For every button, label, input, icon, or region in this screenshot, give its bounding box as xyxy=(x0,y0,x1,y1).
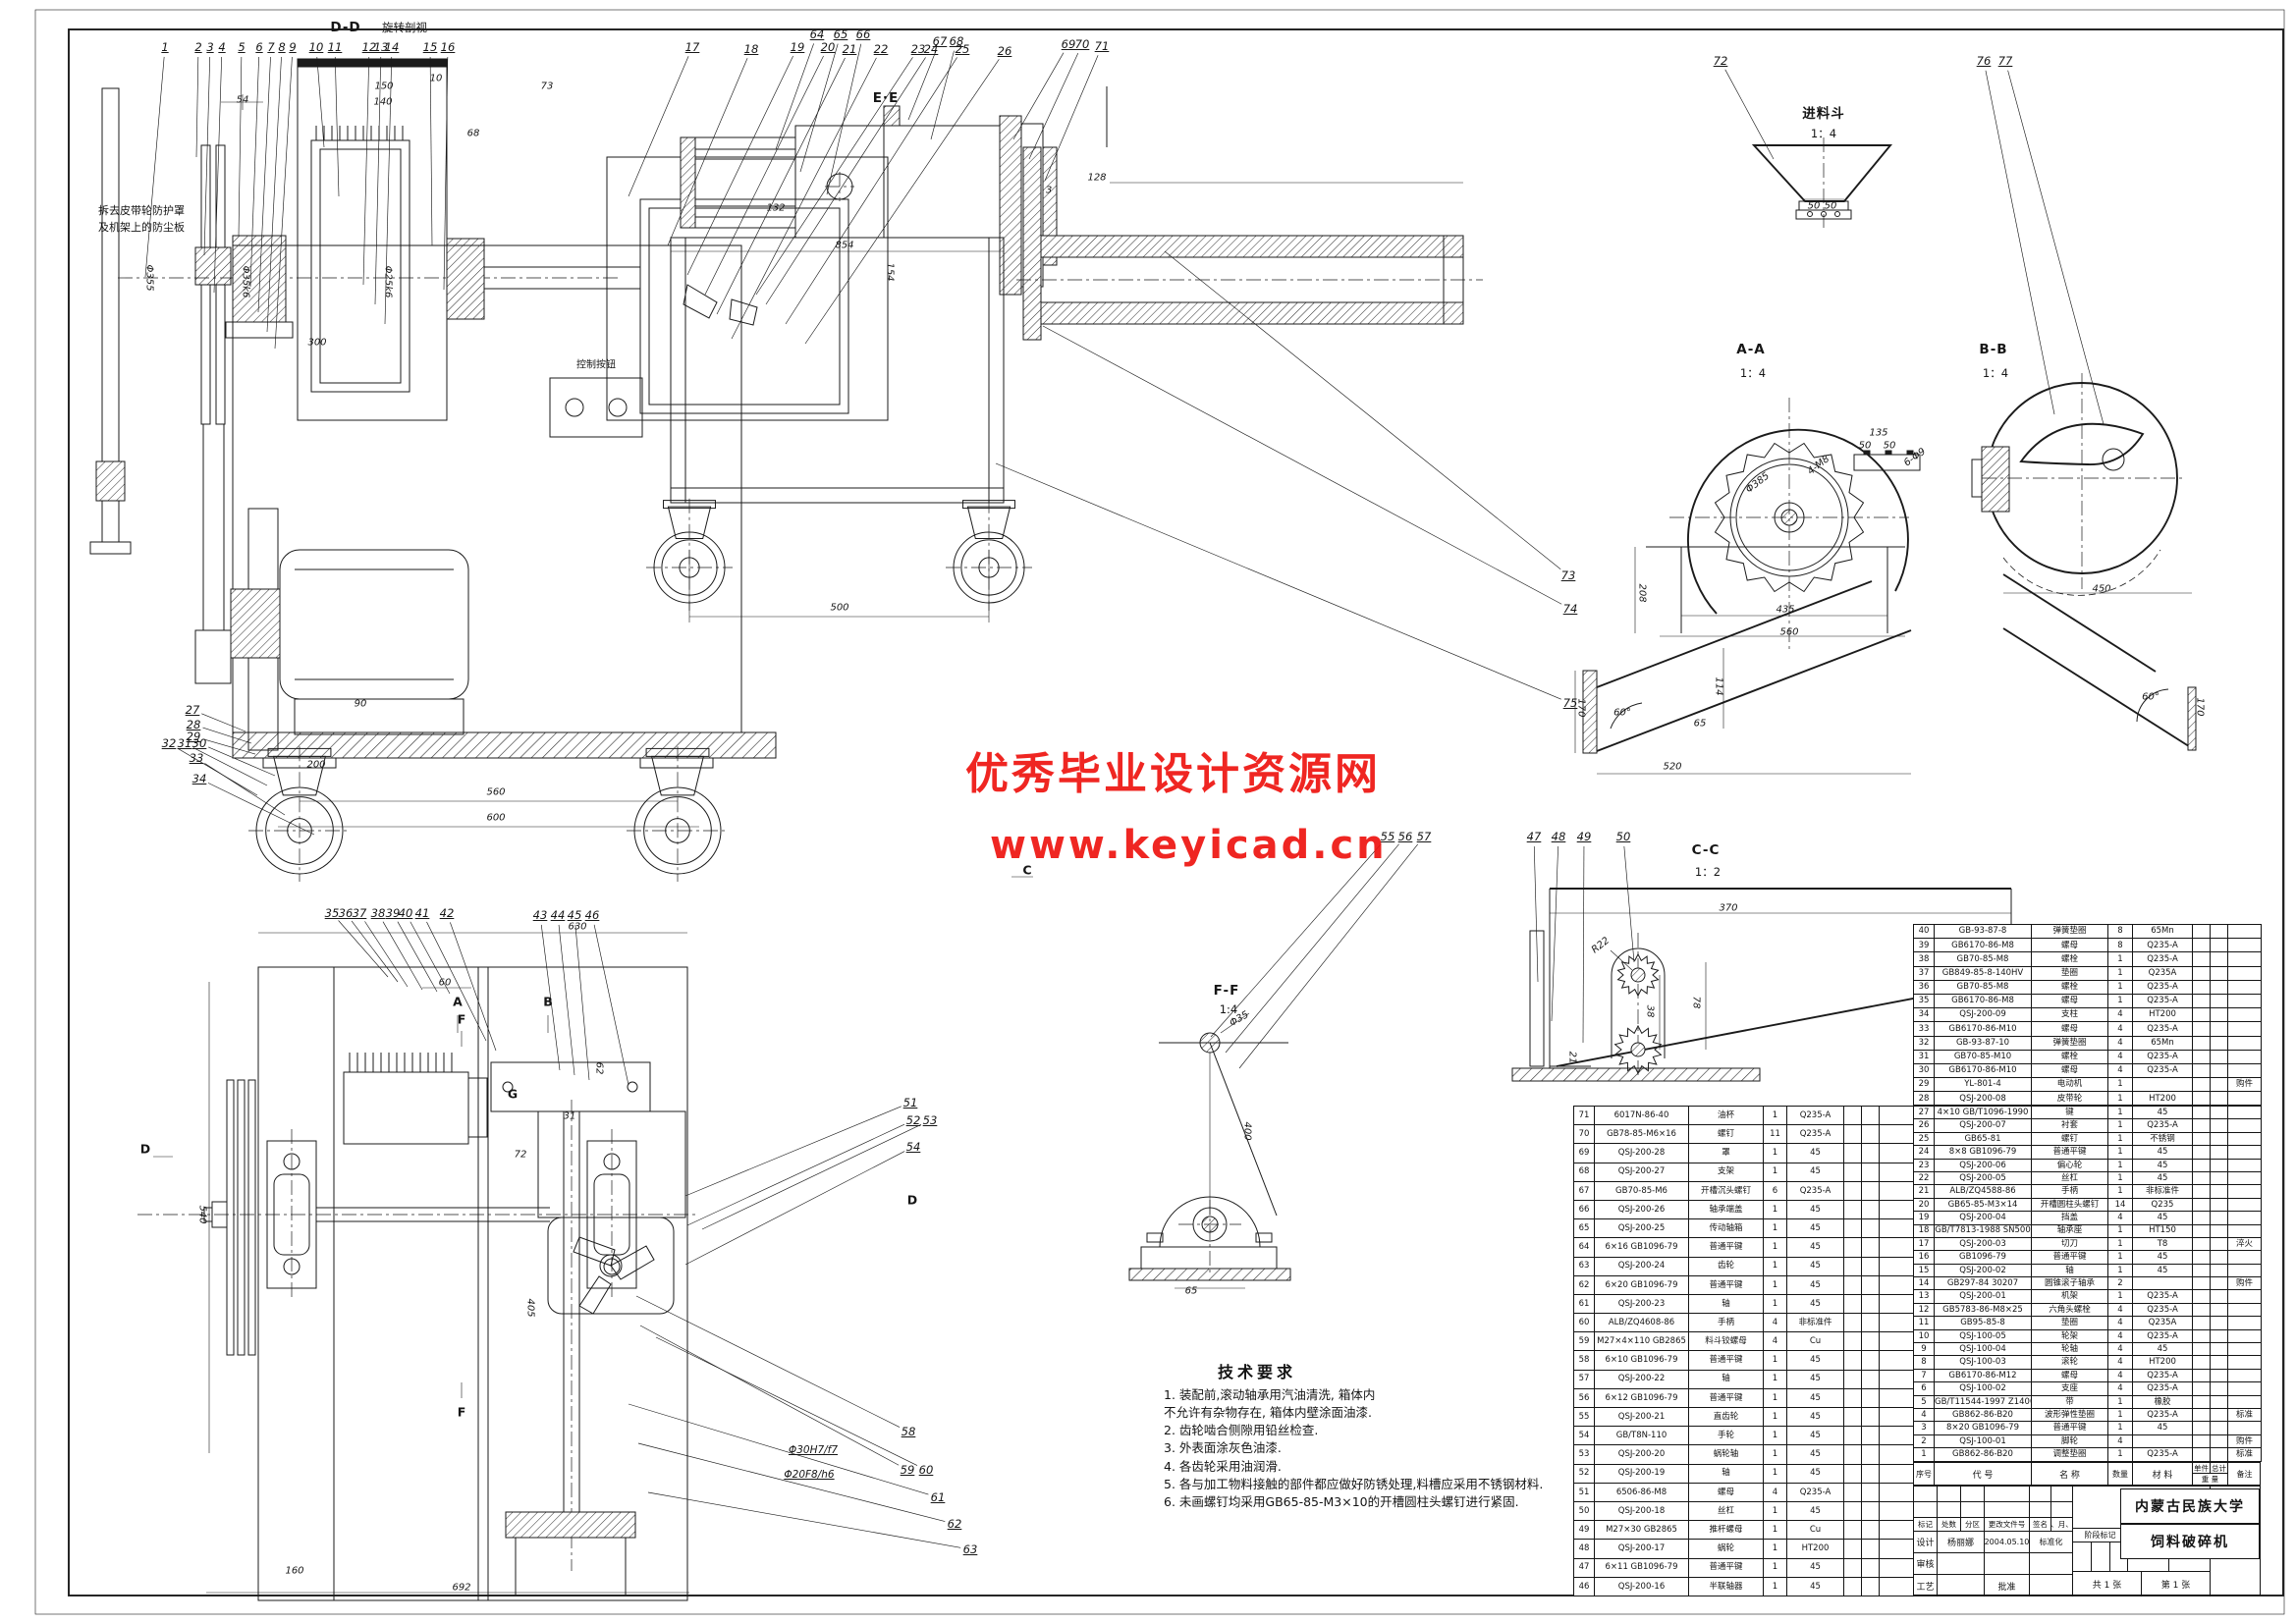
callout-52: 52 xyxy=(906,1113,921,1127)
bom-row: 53QSJ-200-20蜗轮轴145 xyxy=(1574,1445,1914,1464)
dim-label: 450 xyxy=(2092,584,2110,595)
bom-row: 10QSJ-100-05轮架4Q235-A xyxy=(1914,1329,2262,1342)
tb-designer: 杨丽娜 xyxy=(1938,1532,1985,1553)
dim-label: A xyxy=(453,995,463,1009)
dim-label: 170 xyxy=(2195,697,2206,716)
callout-51: 51 xyxy=(903,1096,918,1109)
dim-label: 60° xyxy=(2142,692,2159,703)
dim-label: 435 xyxy=(1776,605,1794,616)
bom-header-name: 名 称 xyxy=(2032,1463,2108,1486)
dim-label: 控制按钮 xyxy=(576,356,616,371)
callout-67: 67 xyxy=(933,34,948,48)
bom-row: 69QSJ-200-28罩145 xyxy=(1574,1144,1914,1163)
bom-row: 6QSJ-100-02支座4Q235-A xyxy=(1914,1382,2262,1395)
tb-sheet-no: 第 1 张 xyxy=(2142,1572,2211,1596)
bom-row: 26QSJ-200-07衬套1Q235-A xyxy=(1914,1119,2262,1132)
callout-30: 30 xyxy=(192,736,207,750)
bom-row: 8QSJ-100-03滚轮4HT200 xyxy=(1914,1356,2262,1369)
callout-69: 69 xyxy=(1062,37,1076,51)
technical-requirements-items: 1. 装配前,滚动轴承用汽油清洗, 箱体内 不允许有杂物存在, 箱体内壁涂面油漆… xyxy=(1164,1386,1635,1511)
dim-label: F xyxy=(458,1405,466,1420)
dim-label: 400 xyxy=(1242,1121,1253,1140)
tb-docno: 更改文件号 xyxy=(1985,1518,2030,1532)
dim-label: 854 xyxy=(835,241,853,251)
dim-label: 150 xyxy=(374,81,393,92)
dim-label: 370 xyxy=(1719,903,1737,914)
callout-45: 45 xyxy=(568,908,582,922)
callout-4: 4 xyxy=(218,40,225,54)
bom-row: 22QSJ-200-05丝杠145 xyxy=(1914,1171,2262,1184)
bom-row: 40GB-93-87-8弹簧垫圈865Mn xyxy=(1914,925,2262,939)
view-front-section-dd xyxy=(90,59,888,827)
title-block: 标记 处数 分区 更改文件号 签名 年、月、日 设计 杨丽娜 2004.05.1… xyxy=(1913,1486,2261,1596)
dim-label: Φ355 xyxy=(144,265,155,292)
bom-row: 15QSJ-200-02轴145 xyxy=(1914,1264,2262,1276)
dim-label: 72 xyxy=(515,1150,527,1161)
dim-label: 拆去皮带轮防护罩 xyxy=(98,202,185,218)
bom-row: 20GB65-85-M3×14开槽圆柱头螺钉14Q235 xyxy=(1914,1198,2262,1211)
bom-row: 29YL-801-4电动机1购件 xyxy=(1914,1078,2262,1092)
bom-row: 31GB70-85-M10螺栓4Q235-A xyxy=(1914,1050,2262,1063)
bom-row: 4GB862-86-B20波形弹性垫圈1Q235-A标准 xyxy=(1914,1408,2262,1421)
callout-63: 63 xyxy=(963,1542,978,1556)
callout-57: 57 xyxy=(1417,830,1432,843)
bom-row: 65QSJ-200-25传动轴箱145 xyxy=(1574,1219,1914,1238)
tb-check-label: 审核 xyxy=(1914,1553,1938,1575)
bom-row: 60ALB/ZQ4608-86手柄4非标准件 xyxy=(1574,1314,1914,1332)
dim-label: Φ25k6 xyxy=(383,266,394,298)
view-label: 1：2 xyxy=(1695,864,1721,880)
bom-table-right-lower: 274×10 GB/T1096-1990键14526QSJ-200-07衬套1Q… xyxy=(1913,1106,2262,1462)
list-item: 4. 各齿轮采用油润滑. xyxy=(1164,1458,1635,1476)
callout-74: 74 xyxy=(1563,602,1578,616)
callout-26: 26 xyxy=(998,44,1012,58)
view-roller-detail xyxy=(1016,86,1483,340)
dim-label: F xyxy=(458,1012,466,1027)
bom-header-no: 序号 xyxy=(1914,1463,1935,1486)
callout-38: 38 xyxy=(371,906,386,920)
callout-35: 35 xyxy=(325,906,340,920)
callout-61: 61 xyxy=(931,1490,946,1504)
bom-row: 586×10 GB1096-79普通平键145 xyxy=(1574,1351,1914,1370)
callout-44: 44 xyxy=(551,908,566,922)
callout-8: 8 xyxy=(278,40,285,54)
callout-19: 19 xyxy=(791,40,805,54)
bom-row: 16GB1096-79普通平键145 xyxy=(1914,1251,2262,1264)
callout-65: 65 xyxy=(834,27,848,41)
bom-row: 32GB-93-87-10弹簧垫圈465Mn xyxy=(1914,1036,2262,1050)
view-section-ff xyxy=(1129,1013,1290,1288)
callout-58: 58 xyxy=(902,1425,916,1438)
callout-21: 21 xyxy=(843,42,857,56)
dim-label: 170 xyxy=(1576,698,1587,717)
bom-row: 38×20 GB1096-79普通平键145 xyxy=(1914,1422,2262,1434)
callout-60: 60 xyxy=(919,1463,934,1477)
callout-48: 48 xyxy=(1552,830,1566,843)
view-label: F-F xyxy=(1214,983,1240,999)
tb-standard-label: 标准化 xyxy=(2030,1532,2073,1553)
dim-label: 60° xyxy=(1613,708,1631,719)
view-label: 1：4 xyxy=(1983,365,2008,381)
dim-label: Φ35k6 xyxy=(241,266,251,298)
callout-43: 43 xyxy=(533,908,548,922)
bom-row: 1GB862-86-B20调整垫圈1Q235-A标准 xyxy=(1914,1448,2262,1461)
list-item: 1. 装配前,滚动轴承用汽油清洗, 箱体内 不允许有杂物存在, 箱体内壁涂面油漆… xyxy=(1164,1386,1635,1422)
dim-label: 90 xyxy=(355,699,367,710)
bom-row: 21ALB/ZQ4588-86手柄1非标准件 xyxy=(1914,1185,2262,1198)
dim-label: 132 xyxy=(766,203,785,214)
callout-37: 37 xyxy=(353,906,367,920)
callout-36: 36 xyxy=(339,906,354,920)
bom-row: 33GB6170-86-M10螺母4Q235-A xyxy=(1914,1022,2262,1036)
bom-row: 25GB65-81螺钉1不锈钢 xyxy=(1914,1132,2262,1145)
callout-64: 64 xyxy=(810,27,825,41)
dim-label: 60 xyxy=(439,978,452,989)
bom-table-left: 716017N-86-40油杯1Q235-A70GB78-85-M6×16螺钉1… xyxy=(1573,1106,1914,1596)
dim-label: 560 xyxy=(486,787,505,798)
bom-row: 274×10 GB/T1096-1990键145 xyxy=(1914,1107,2262,1119)
tb-count: 处数 xyxy=(1938,1518,1961,1532)
dim-label: 128 xyxy=(1087,173,1106,184)
bom-row: 17QSJ-200-03切刀1T8淬火 xyxy=(1914,1237,2262,1250)
dim-label: 50 xyxy=(1808,201,1821,212)
dim-label: 50 xyxy=(1859,441,1872,452)
callout-53: 53 xyxy=(923,1113,938,1127)
bom-row: 52QSJ-200-19轴145 xyxy=(1574,1464,1914,1483)
dim-label: 21 xyxy=(1567,1052,1578,1064)
callout-68: 68 xyxy=(950,34,964,48)
bom-row: 7GB6170-86-M12螺母4Q235-A xyxy=(1914,1369,2262,1381)
view-label: C-C xyxy=(1692,842,1721,858)
bom-row: 12GB5783-86-M8×25六角头螺栓4Q235-A xyxy=(1914,1303,2262,1316)
dim-label: 54 xyxy=(237,95,249,106)
dim-label: D xyxy=(907,1193,917,1208)
view-label: E·E xyxy=(873,90,900,106)
dim-label: 300 xyxy=(307,338,326,349)
bom-row: 626×20 GB1096-79普通平键145 xyxy=(1574,1275,1914,1294)
bom-row: 18GB/T7813-1988 SN500轴承座1HT150 xyxy=(1914,1224,2262,1237)
dim-label: Φ20F8/h6 xyxy=(784,1469,834,1481)
tb-mark: 标记 xyxy=(1914,1518,1938,1532)
callout-32: 32 xyxy=(162,736,177,750)
bom-row: 30GB6170-86-M10螺母4Q235-A xyxy=(1914,1063,2262,1077)
tb-date-label: 年、月、日 xyxy=(2051,1518,2073,1532)
callout-66: 66 xyxy=(856,27,871,41)
dim-label: 62 xyxy=(594,1062,605,1075)
dim-label: 50 xyxy=(1884,441,1896,452)
bom-row: 38GB70-85-M8螺栓1Q235-A xyxy=(1914,952,2262,966)
dim-label: 200 xyxy=(306,760,325,771)
dim-label: 65 xyxy=(1694,719,1707,730)
callout-34: 34 xyxy=(192,772,207,785)
dim-label: 405 xyxy=(525,1298,536,1317)
dim-label: D xyxy=(140,1142,150,1157)
bom-row: 37GB849-85-8-140HV垫圈1Q235A xyxy=(1914,966,2262,980)
bom-row: 248×8 GB1096-79普通平键145 xyxy=(1914,1146,2262,1159)
bom-row: 646×16 GB1096-79普通平键145 xyxy=(1574,1238,1914,1257)
callout-1: 1 xyxy=(161,40,168,54)
callout-22: 22 xyxy=(874,42,889,56)
callout-76: 76 xyxy=(1977,54,1992,68)
view-label: 1：4 xyxy=(1811,126,1836,141)
list-item: 5. 各与加工物料接触的部件都应做好防锈处理,料槽应采用不锈钢材料. xyxy=(1164,1476,1635,1493)
bom-row: 19QSJ-200-04挡盖445 xyxy=(1914,1212,2262,1224)
view-hopper xyxy=(1754,137,1890,228)
dim-label: 135 xyxy=(1869,428,1887,439)
callout-31: 31 xyxy=(178,736,192,750)
dim-label: 78 xyxy=(1691,997,1702,1009)
callout-27: 27 xyxy=(186,703,200,717)
dim-label: 500 xyxy=(830,603,848,614)
bom-row: 28QSJ-200-08皮带轮1HT200 xyxy=(1914,1092,2262,1106)
bom-row: 23QSJ-200-06偏心轮145 xyxy=(1914,1159,2262,1171)
bom-row: 67GB70-85-M6开槽沉头螺钉6Q235-A xyxy=(1574,1181,1914,1200)
bom-row: 566×12 GB1096-79普通平键145 xyxy=(1574,1388,1914,1407)
callout-72: 72 xyxy=(1714,54,1728,68)
cad-sheet: 优秀毕业设计资源网 www.keyicad.cn 技术要求 1. 装配前,滚动轴… xyxy=(0,0,2296,1623)
callout-56: 56 xyxy=(1398,830,1413,843)
dim-label: Φ30H7/f7 xyxy=(789,1444,838,1456)
tb-sheet-total: 共 1 张 xyxy=(2073,1572,2142,1596)
bom-row: 63QSJ-200-24齿轮145 xyxy=(1574,1257,1914,1275)
dim-label: 65 xyxy=(1185,1286,1198,1297)
bom-row: 55QSJ-200-21直齿轮145 xyxy=(1574,1408,1914,1427)
dim-label: 560 xyxy=(1779,627,1798,638)
bom-row: 13QSJ-200-01机架1Q235-A xyxy=(1914,1290,2262,1303)
bom-row: 54GB/T8N-110手轮145 xyxy=(1574,1427,1914,1445)
callout-73: 73 xyxy=(1561,568,1576,582)
dim-label: 3 xyxy=(1046,186,1052,196)
bom-row: 70GB78-85-M6×16螺钉11Q235-A xyxy=(1574,1125,1914,1144)
tb-process-label: 工艺 xyxy=(1914,1575,1938,1596)
view-label: B-B xyxy=(1979,342,2007,357)
bom-row: 35GB6170-86-M8螺母1Q235-A xyxy=(1914,994,2262,1007)
dim-label: B xyxy=(543,995,553,1009)
callout-14: 14 xyxy=(385,40,400,54)
callout-17: 17 xyxy=(685,40,700,54)
bom-row: 68QSJ-200-27支架145 xyxy=(1574,1163,1914,1181)
bom-row: 39GB6170-86-M8螺母8Q235-A xyxy=(1914,939,2262,952)
callout-10: 10 xyxy=(309,40,324,54)
technical-requirements: 技术要求 1. 装配前,滚动轴承用汽油清洗, 箱体内 不允许有杂物存在, 箱体内… xyxy=(1164,1359,1635,1511)
callout-42: 42 xyxy=(440,906,455,920)
callout-9: 9 xyxy=(289,40,296,54)
callout-33: 33 xyxy=(190,751,204,765)
view-plan xyxy=(137,877,1033,1600)
dim-label: 31 xyxy=(564,1111,576,1122)
dim-label: 114 xyxy=(1714,676,1724,695)
callout-18: 18 xyxy=(744,42,759,56)
dim-label: 38 xyxy=(1645,1005,1656,1018)
bom-row: 36GB70-85-M8螺栓1Q235-A xyxy=(1914,980,2262,994)
bom-header: 序号 代 号 名 称 数量 材 料 单件 总计 重 量 备注 xyxy=(1913,1462,2261,1487)
callout-49: 49 xyxy=(1577,830,1592,843)
list-item: 2. 齿轮啮合侧隙用铅丝检查. xyxy=(1164,1422,1635,1439)
tb-school: 内蒙古民族大学 xyxy=(2120,1488,2260,1524)
dim-label: 692 xyxy=(452,1583,470,1594)
callout-47: 47 xyxy=(1527,830,1542,843)
watermark-line1: 优秀毕业设计资源网 xyxy=(965,738,1381,801)
dim-label: 208 xyxy=(1637,583,1648,602)
callout-59: 59 xyxy=(901,1463,915,1477)
bom-row: 716017N-86-40油杯1Q235-A xyxy=(1574,1107,1914,1125)
list-item: 6. 未画螺钉均采用GB65-85-M3×10的开槽圆柱头螺钉进行紧固. xyxy=(1164,1493,1635,1511)
tb-date: 2004.05.10 xyxy=(1985,1532,2030,1553)
view-side-section-ee xyxy=(671,106,1057,622)
bom-row: 5GB/T11544-1997 Z1400带1橡胶 xyxy=(1914,1395,2262,1408)
callout-62: 62 xyxy=(948,1517,962,1531)
callout-46: 46 xyxy=(585,908,600,922)
dim-label: G xyxy=(508,1087,518,1102)
dim-label: 10 xyxy=(430,74,443,84)
dim-label: 520 xyxy=(1663,762,1681,773)
bom-row: 49M27×30 GB2865推杆螺母1Cu xyxy=(1574,1521,1914,1540)
dim-label: 160 xyxy=(285,1566,303,1577)
bom-header-w1: 单件 xyxy=(2193,1463,2211,1474)
bom-table-right-upper: 40GB-93-87-8弹簧垫圈865Mn39GB6170-86-M8螺母8Q2… xyxy=(1913,924,2262,1106)
dim-label: 540 xyxy=(197,1205,208,1223)
bom-header-qty: 数量 xyxy=(2108,1463,2133,1486)
view-label: 旋转剖视 xyxy=(382,20,427,35)
callout-15: 15 xyxy=(423,40,438,54)
callout-41: 41 xyxy=(415,906,430,920)
bom-row: 476×11 GB1096-79普通平键145 xyxy=(1574,1558,1914,1577)
bom-row: 50QSJ-200-18丝杠145 xyxy=(1574,1501,1914,1520)
view-section-bb xyxy=(1972,373,2196,750)
tb-sign: 签名 xyxy=(2030,1518,2051,1532)
callout-40: 40 xyxy=(399,906,413,920)
bom-header-w2: 总计 xyxy=(2211,1463,2228,1474)
bom-row: 61QSJ-200-23轴145 xyxy=(1574,1294,1914,1313)
callout-54: 54 xyxy=(906,1140,921,1154)
dim-label: 630 xyxy=(568,922,586,933)
bom-row: 66QSJ-200-26轴承端盖145 xyxy=(1574,1200,1914,1218)
bom-header-note: 备注 xyxy=(2228,1463,2261,1486)
dim-label: 50 xyxy=(1825,201,1837,212)
dim-label: 600 xyxy=(486,813,505,824)
bom-row: 516506-86-M8螺母4Q235-A xyxy=(1574,1483,1914,1501)
bom-row: 46QSJ-200-16半联轴器145 xyxy=(1574,1577,1914,1596)
bom-header-mat: 材 料 xyxy=(2133,1463,2193,1486)
view-label: D-D xyxy=(330,20,360,35)
bom-row: 11GB95-85-8垫圈4Q235A xyxy=(1914,1317,2262,1329)
callout-3: 3 xyxy=(206,40,213,54)
view-label: 进料斗 xyxy=(1802,102,1845,122)
bom-header-weight: 重 量 xyxy=(2193,1474,2228,1486)
bom-row: 48QSJ-200-17蜗轮1HT200 xyxy=(1574,1540,1914,1558)
bom-row: 57QSJ-200-22轴145 xyxy=(1574,1370,1914,1388)
callout-71: 71 xyxy=(1095,39,1110,53)
bom-row: 34QSJ-200-09支柱4HT200 xyxy=(1914,1008,2262,1022)
tb-drawing-title: 饲料破碎机 xyxy=(2120,1524,2260,1559)
callout-20: 20 xyxy=(821,40,836,54)
view-label: 1：4 xyxy=(1740,365,1766,381)
bom-header-code: 代 号 xyxy=(1935,1463,2032,1486)
dim-label: 154 xyxy=(885,262,896,281)
list-item: 3. 外表面涂灰色油漆. xyxy=(1164,1439,1635,1457)
dim-label: 140 xyxy=(373,97,392,108)
callout-50: 50 xyxy=(1616,830,1631,843)
callout-5: 5 xyxy=(238,40,245,54)
bom-row: 14GB297-84 30207圆锥滚子轴承2购件 xyxy=(1914,1277,2262,1290)
tb-approve-label: 批准 xyxy=(1985,1575,2030,1596)
bom-row: 9QSJ-100-04轮轴445 xyxy=(1914,1343,2262,1356)
callout-16: 16 xyxy=(441,40,456,54)
dim-label: 及机架上的防尘板 xyxy=(98,219,185,235)
callout-7: 7 xyxy=(267,40,274,54)
callout-6: 6 xyxy=(255,40,262,54)
bom-row: 59M27×4×110 GB2865料斗铰螺母4Cu xyxy=(1574,1332,1914,1351)
callout-77: 77 xyxy=(1998,54,2013,68)
dim-label: 73 xyxy=(541,81,554,92)
view-label: A-A xyxy=(1736,342,1766,357)
callout-2: 2 xyxy=(194,40,201,54)
callout-70: 70 xyxy=(1075,37,1090,51)
watermark-line2: www.keyicad.cn xyxy=(990,823,1388,868)
dim-label: 68 xyxy=(467,129,480,139)
tb-zone: 分区 xyxy=(1961,1518,1985,1532)
bom-row: 2QSJ-100-01脚轮4购件 xyxy=(1914,1434,2262,1447)
callout-11: 11 xyxy=(328,40,343,54)
tb-design-label: 设计 xyxy=(1914,1532,1938,1553)
